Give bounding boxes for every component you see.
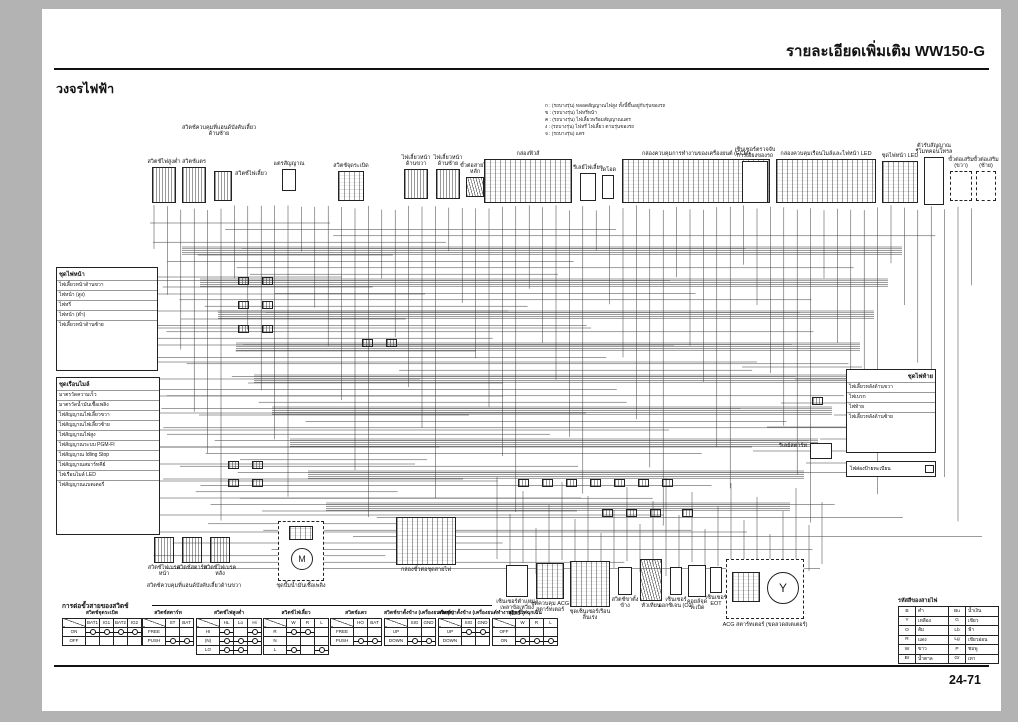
color-code: W: [899, 645, 916, 655]
table-row: N: [264, 636, 329, 645]
row-label: PUSH: [143, 636, 166, 645]
table-row: FREE: [143, 627, 194, 636]
table-row: LO: [197, 645, 262, 654]
horn-switch-box: [182, 167, 206, 203]
connector: [228, 461, 239, 469]
footer-rule: [54, 665, 989, 667]
list-item: ไฟหน้า (สูง): [57, 290, 157, 300]
table-row: WขาวPชมพู: [899, 645, 999, 655]
connector: [238, 325, 249, 333]
remote-receiver-box: [924, 157, 944, 205]
conn-cell: [422, 627, 436, 636]
col-header: GND: [476, 618, 490, 627]
ckp-sensor-box: [506, 565, 528, 597]
fuse-box-box: [484, 159, 572, 203]
page-header: รายละเอียดเพิ่มเติม WW150-G: [786, 39, 985, 63]
front-turn-right-box: [404, 169, 428, 199]
conn-cell: [422, 636, 436, 645]
connector: [262, 277, 273, 285]
color-code-grid: BดำBuน้ำเงินYเหลืองGเขียวOส้มLbฟ้าRแดงLg…: [898, 606, 999, 664]
conn-cell: [220, 645, 234, 654]
connector-pin: [925, 465, 934, 473]
switch-table: สวิตช์สตาร์ทSTBATFREEPUSH: [142, 611, 194, 646]
fan-icon: Y: [767, 572, 799, 604]
conn-cell: [86, 636, 100, 645]
list-item: ไฟเลี้ยวหลังด้านขวา: [847, 382, 935, 392]
diagonal-cell: [439, 618, 462, 627]
connector: [262, 301, 273, 309]
table-row: PUSH: [331, 636, 382, 645]
harness-junction-box: [396, 517, 456, 565]
list-item: ไฟเรือนไมล์ LED: [57, 470, 159, 480]
manual-page: รายละเอียดเพิ่มเติม WW150-G วงจรไฟฟ้า ก …: [42, 9, 1001, 711]
conn-cell: [287, 627, 301, 636]
table-row: DOWN: [385, 636, 436, 645]
conn-cell: [220, 636, 234, 645]
option-connector-l-label: ขั้วต่อเสริม (ซ้าย): [969, 157, 1003, 169]
conn-cell: [544, 627, 558, 636]
color-name: ชมพู: [966, 645, 999, 655]
turn-signal-switch-box: [214, 171, 232, 201]
fuel-pump-box: M: [278, 521, 324, 581]
conn-cell: [234, 645, 248, 654]
table-row: SIGGND: [439, 618, 490, 627]
conn-cell: [166, 636, 180, 645]
switch-table-title: สวิตช์แตร: [330, 611, 382, 617]
switch-table-title: สวิตช์ไฟฉุกเฉิน: [492, 611, 558, 617]
conn-cell: [516, 636, 530, 645]
col-header: L: [544, 618, 558, 627]
tail-unit-title: ชุดไฟท้าย: [847, 370, 935, 382]
table-row: R: [264, 627, 329, 636]
table-row: UP: [439, 627, 490, 636]
conn-cell: [248, 636, 262, 645]
color-name: เขียว: [966, 616, 999, 626]
table-row: UP: [385, 627, 436, 636]
conn-cell: [301, 636, 315, 645]
connector: [252, 479, 263, 487]
table-row: STBAT: [143, 618, 194, 627]
connector: [590, 479, 601, 487]
side-stand-switch-box: [618, 567, 632, 595]
flasher-relay-box: [580, 173, 596, 201]
stator-coil: [732, 572, 760, 602]
left-handle-note: สวิตช์ควบคุมที่แฮนด์บังคับเลี้ยวด้านซ้าย: [180, 125, 258, 137]
table-row: ON: [63, 627, 142, 636]
acg-control-box: [536, 563, 564, 599]
dimmer-switch-label: สวิตช์ไฟสูงต่ำ: [147, 159, 181, 165]
color-code: Lg: [949, 635, 966, 645]
row-label: UP: [439, 627, 462, 636]
conn-cell: [315, 645, 329, 654]
color-code-table: รหัสสีของสายไฟ BดำBuน้ำเงินYเหลืองGเขียว…: [898, 597, 999, 664]
col-header: ST: [166, 618, 180, 627]
col-header: R: [301, 618, 315, 627]
harness-junction-label: กล่องขั้วต่อชุดสายไฟ: [395, 567, 457, 573]
color-code: Br: [899, 654, 916, 664]
col-header: BAT1: [86, 618, 100, 627]
section-title: วงจรไฟฟ้า: [56, 79, 114, 99]
col-header: L: [315, 618, 329, 627]
table-row: BAT1IG1BAT2IG2: [63, 618, 142, 627]
row-label: OFF: [63, 636, 86, 645]
row-label: FREE: [331, 627, 354, 636]
conn-cell: [287, 645, 301, 654]
diagonal-cell: [385, 618, 408, 627]
switch-table: สวิตช์จุดระเบิดBAT1IG1BAT2IG2ONOFF: [62, 611, 142, 646]
license-light-box: ไฟส่องป้ายทะเบียน: [846, 461, 936, 477]
conn-cell: [408, 627, 422, 636]
color-code: Gr: [949, 654, 966, 664]
throttle-body-box: [570, 561, 610, 607]
switch-table-title: สวิตช์ไฟสูงต่ำ: [196, 611, 262, 617]
conn-cell: [368, 636, 382, 645]
conn-cell: [462, 627, 476, 636]
color-name: เทา: [966, 654, 999, 664]
connector: [252, 461, 263, 469]
conn-cell: [315, 636, 329, 645]
table-row: (N): [197, 636, 262, 645]
instrument-cluster-box: ชุดเรือนไมล์มาตรวัดความเร็วมาตรวัดน้ำมัน…: [56, 377, 160, 535]
switch-table: สวิตช์ไฟฉุกเฉินWRLOFFON: [492, 611, 558, 646]
switch-table-title: สวิตช์ไฟเลี้ยว: [263, 611, 329, 617]
switch-table: สวิตช์ไฟเลี้ยวWRLRNL: [263, 611, 329, 655]
conn-cell: [301, 627, 315, 636]
table-row: Oส้มLbฟ้า: [899, 626, 999, 636]
screenshot-root: { "page": { "header": "รายละเอียดเพิ่มเต…: [0, 0, 1018, 722]
list-item: ไฟเบรก: [847, 392, 935, 402]
row-label: FREE: [143, 627, 166, 636]
table-row: RแดงLgเขียวอ่อน: [899, 635, 999, 645]
headlight-led-box: [882, 161, 918, 203]
right-handle-switch-box: [210, 537, 230, 563]
conn-cell: [166, 627, 180, 636]
color-code-title: รหัสสีของสายไฟ: [898, 597, 999, 605]
switch-table: สวิตช์แตรHOBATFREEPUSH: [330, 611, 382, 646]
color-name: น้ำตาล: [916, 654, 949, 664]
table-row: OFF: [63, 636, 142, 645]
diode-box: [602, 175, 614, 199]
meter-control-box-box: [776, 159, 876, 203]
connector: [238, 277, 249, 285]
col-header: R: [530, 618, 544, 627]
conn-cell: [544, 636, 558, 645]
list-item: ไฟสัญญาณไฟเลี้ยวซ้าย: [57, 420, 159, 430]
table-row: YเหลืองGเขียว: [899, 616, 999, 626]
list-item: ไฟเลี้ยวหน้าด้านซ้าย: [57, 320, 157, 330]
col-header: IG1: [100, 618, 114, 627]
switch-tables-rule: [152, 605, 492, 606]
row-label: ON: [493, 636, 516, 645]
ignition-coil-box: [688, 565, 706, 597]
header-rule: [54, 68, 989, 70]
headlight-unit-title: ชุดไฟหน้า: [57, 268, 157, 280]
switch-table-title: สวิตช์สตาร์ท: [142, 611, 194, 617]
list-item: ไฟหรี่: [57, 300, 157, 310]
conn-cell: [114, 636, 128, 645]
table-row: Brน้ำตาลGrเทา: [899, 654, 999, 664]
col-header: SIG: [408, 618, 422, 627]
list-item: มาตรวัดน้ำมันเชื้อเพลิง: [57, 400, 159, 410]
throttle-body-label: ชุดเซ็นเซอร์เรือนลิ้นเร่ง: [568, 609, 612, 621]
table-row: SIGGND: [385, 618, 436, 627]
list-item: ไฟท้าย: [847, 402, 935, 412]
instrument-cluster-title: ชุดเรือนไมล์: [57, 378, 159, 390]
color-code: G: [949, 616, 966, 626]
conn-cell: [530, 627, 544, 636]
conn-cell: [128, 627, 142, 636]
row-label: DOWN: [385, 636, 408, 645]
list-item: ไฟสัญญาณ Idling Stop: [57, 450, 159, 460]
connector: [614, 479, 625, 487]
conn-cell: [476, 636, 490, 645]
col-header: W: [516, 618, 530, 627]
starter-relay-label: รีเลย์สตาร์ท: [771, 443, 807, 449]
conn-cell: [220, 627, 234, 636]
conn-cell: [408, 636, 422, 645]
row-label: HI: [197, 627, 220, 636]
conn-cell: [234, 627, 248, 636]
color-name: ฟ้า: [966, 626, 999, 636]
dimmer-switch-box: [152, 167, 176, 203]
conn-cell: [86, 627, 100, 636]
conn-cell: [128, 636, 142, 645]
table-row: OFF: [493, 627, 558, 636]
list-item: มาตรวัดความเร็ว: [57, 390, 159, 400]
list-item: ไฟสัญญาณระบบ PGM-FI: [57, 440, 159, 450]
col-header: BAT: [368, 618, 382, 627]
table-row: PUSH: [143, 636, 194, 645]
row-label: OFF: [493, 627, 516, 636]
page-number: 24-71: [949, 673, 981, 687]
ignition-switch-label: สวิตช์จุดระเบิด: [331, 163, 371, 169]
switch-table-grid: BAT1IG1BAT2IG2ONOFF: [62, 618, 142, 646]
col-header: HL: [220, 618, 234, 627]
horn-switch-label: สวิตช์แตร: [179, 159, 209, 165]
list-item: ไฟสัญญาณสมาร์ทคีย์: [57, 460, 159, 470]
horn-box: [282, 169, 296, 191]
table-row: HI: [197, 627, 262, 636]
meter-control-box-label: กล่องควบคุมเรือนไมล์และไฟหน้า LED: [774, 151, 878, 157]
ignition-switch-box: [338, 171, 364, 201]
pump-motor-icon: M: [291, 548, 313, 570]
conn-cell: [516, 627, 530, 636]
color-name: ขาว: [916, 645, 949, 655]
diagonal-cell: [264, 618, 287, 627]
color-code: Bu: [949, 607, 966, 617]
color-name: เขียวอ่อน: [966, 635, 999, 645]
diagonal-cell: [197, 618, 220, 627]
switch-table-grid: WRLOFFON: [492, 618, 558, 646]
col-header: GND: [422, 618, 436, 627]
row-label: L: [264, 645, 287, 654]
color-name: เหลือง: [916, 616, 949, 626]
right-handle-switch-label: สวิตช์ไฟเบรคหลัง: [202, 565, 238, 577]
remote-receiver-label: ตัวรับสัญญาณรีโมทคอนโทรล: [913, 143, 955, 155]
tail-unit-box: ชุดไฟท้ายไฟเลี้ยวหลังด้านขวาไฟเบรกไฟท้าย…: [846, 369, 936, 453]
headlight-unit-box: ชุดไฟหน้าไฟเลี้ยวหน้าด้านขวาไฟหน้า (สูง)…: [56, 267, 158, 371]
col-header: IG2: [128, 618, 142, 627]
table-row: ON: [493, 636, 558, 645]
row-label: N: [264, 636, 287, 645]
col-header: BAT2: [114, 618, 128, 627]
right-handle-switch-box: [182, 537, 202, 563]
front-turn-right-label: ไฟเลี้ยวหน้าด้านขวา: [398, 155, 434, 167]
connector: [812, 397, 823, 405]
row-label: UP: [385, 627, 408, 636]
conn-cell: [180, 636, 194, 645]
fuel-pump-label: ชุดปั๊มน้ำมันเชื้อเพลิง: [273, 583, 329, 589]
color-name: ดำ: [916, 607, 949, 617]
acg-starter-box: Y: [726, 559, 804, 619]
row-label: LO: [197, 645, 220, 654]
conn-cell: [462, 636, 476, 645]
connector: [626, 509, 637, 517]
connector: [238, 301, 249, 309]
color-code: R: [899, 635, 916, 645]
connector: [602, 509, 613, 517]
diagonal-cell: [331, 618, 354, 627]
switch-table-grid: WRLRNL: [263, 618, 329, 655]
connector: [566, 479, 577, 487]
col-header: Hi: [248, 618, 262, 627]
color-code: Y: [899, 616, 916, 626]
table-row: DOWN: [439, 636, 490, 645]
diagonal-cell: [63, 618, 86, 627]
row-label: (N): [197, 636, 220, 645]
conn-cell: [354, 636, 368, 645]
switch-table-grid: HOBATFREEPUSH: [330, 618, 382, 646]
conn-cell: [100, 636, 114, 645]
wiring-diagram: สวิตช์ไฟสูงต่ำสวิตช์แตรสวิตช์ไฟเลี้ยวแตร…: [42, 97, 1001, 597]
connector: [228, 479, 239, 487]
list-item: ไฟหน้า (ต่ำ): [57, 310, 157, 320]
switch-table-grid: HLLoHiHI(N)LO: [196, 618, 262, 655]
color-name: น้ำเงิน: [966, 607, 999, 617]
diode-label: ไดโอด: [596, 167, 620, 173]
diagonal-cell: [143, 618, 166, 627]
list-item: ไฟสัญญาณไฟเลี้ยวขวา: [57, 410, 159, 420]
col-header: Lo: [234, 618, 248, 627]
license-light-label: ไฟส่องป้ายทะเบียน: [847, 462, 935, 476]
bank-angle-sensor-box: [742, 161, 768, 203]
table-row: L: [264, 645, 329, 654]
right-handle-group-label: สวิตช์ควบคุมที่แฮนด์บังคับเลี้ยวด้านขวา: [146, 583, 242, 589]
conn-cell: [287, 636, 301, 645]
color-code: P: [949, 645, 966, 655]
col-header: HO: [354, 618, 368, 627]
table-row: WRL: [493, 618, 558, 627]
connector: [518, 479, 529, 487]
turn-signal-switch-label: สวิตช์ไฟเลี้ยว: [235, 171, 269, 177]
bank-angle-sensor-label: เซ็นเซอร์ตรวจจับการเอียงของรถ: [733, 147, 777, 159]
color-code: B: [899, 607, 916, 617]
conn-cell: [180, 627, 194, 636]
table-row: BดำBuน้ำเงิน: [899, 607, 999, 617]
connector: [386, 339, 397, 347]
conn-cell: [315, 627, 329, 636]
connector: [362, 339, 373, 347]
table-row: HOBAT: [331, 618, 382, 627]
list-item: ไฟสัญญาณแบตเตอรี่: [57, 480, 159, 490]
connector: [542, 479, 553, 487]
row-label: ON: [63, 627, 86, 636]
color-name: ส้ม: [916, 626, 949, 636]
table-row: FREE: [331, 627, 382, 636]
starter-relay-box: [810, 443, 832, 459]
pump-connector: [289, 526, 313, 540]
front-turn-left-box: [436, 169, 460, 199]
conn-cell: [354, 627, 368, 636]
conn-cell: [248, 645, 262, 654]
spark-plug-box: [640, 559, 662, 601]
row-label: PUSH: [331, 636, 354, 645]
switch-table-grid: STBATFREEPUSH: [142, 618, 194, 646]
connector: [682, 509, 693, 517]
color-code: O: [899, 626, 916, 636]
list-item: ไฟเลี้ยวหลังด้านซ้าย: [847, 412, 935, 422]
connector: [262, 325, 273, 333]
table-row: WRL: [264, 618, 329, 627]
fuse-box-label: กล่องฟิวส์: [493, 151, 563, 157]
o2-sensor-box: [670, 567, 682, 595]
conn-cell: [301, 645, 315, 654]
conn-cell: [114, 627, 128, 636]
color-name: แดง: [916, 635, 949, 645]
col-header: BAT: [180, 618, 194, 627]
col-header: SIG: [462, 618, 476, 627]
conn-cell: [234, 636, 248, 645]
list-item: ไฟเลี้ยวหน้าด้านขวา: [57, 280, 157, 290]
eot-sensor-box: [710, 567, 722, 593]
option-connector-l-box: [976, 171, 996, 201]
table-row: HLLoHi: [197, 618, 262, 627]
conn-cell: [100, 627, 114, 636]
right-handle-switch-box: [154, 537, 174, 563]
diagonal-cell: [493, 618, 516, 627]
connector: [638, 479, 649, 487]
list-item: ไฟสัญญาณไฟสูง: [57, 430, 159, 440]
option-connector-r-box: [950, 171, 972, 201]
switch-table-grid: SIGGNDUPDOWN: [438, 618, 490, 646]
connector: [650, 509, 661, 517]
acg-starter-label: ACG สตาร์ทเตอร์ (ขดลวดสเตเตอร์): [710, 622, 820, 628]
conn-cell: [476, 627, 490, 636]
conn-cell: [530, 636, 544, 645]
conn-cell: [368, 627, 382, 636]
row-label: DOWN: [439, 636, 462, 645]
switch-table-grid: SIGGNDUPDOWN: [384, 618, 436, 646]
switch-table-title: สวิตช์จุดระเบิด: [62, 611, 142, 617]
col-header: W: [287, 618, 301, 627]
conn-cell: [248, 627, 262, 636]
color-code: Lb: [949, 626, 966, 636]
row-label: R: [264, 627, 287, 636]
horn-label: แตรสัญญาณ: [271, 161, 307, 167]
switch-table: สวิตช์ไฟสูงต่ำHLLoHiHI(N)LO: [196, 611, 262, 655]
harness-connector-box: [466, 177, 484, 197]
connector: [662, 479, 673, 487]
